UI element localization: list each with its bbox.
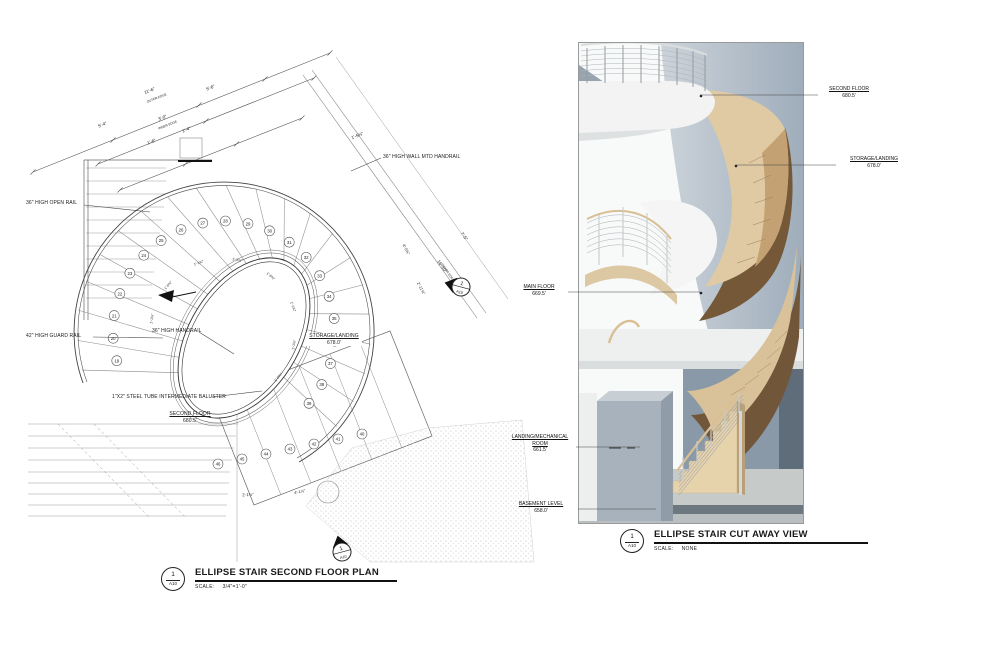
tread-number-circle [198, 218, 208, 228]
tread-line [294, 362, 354, 401]
callout-wall-handrail: 36" HIGH WALL MTD HANDRAIL [383, 154, 503, 161]
tread-number-circle [109, 311, 119, 321]
dim-text: 4'-0⅝" [401, 243, 411, 256]
callout-guard-rail: 42" HIGH GUARD RAIL [26, 333, 96, 340]
tread-number: 42 [312, 442, 317, 447]
level-label: LANDING/MECHANICAL [506, 434, 574, 441]
tread-number-circle [309, 439, 319, 449]
dim-text: 16'-10" [436, 259, 448, 274]
tread-number-circle [237, 454, 247, 464]
tread-number-circle [108, 333, 118, 343]
tread-number-circle [115, 289, 125, 299]
anno-second-floor: SECOND FLOOR 680.5' [820, 86, 878, 99]
dim-text: 5'-6" [205, 83, 216, 91]
cutaway-render-svg [579, 43, 803, 523]
tread-number-circle [139, 250, 149, 260]
tread-number-circle [329, 313, 339, 323]
tread-number: 28 [223, 219, 228, 224]
plan-construction-lines [28, 168, 238, 562]
scale-value: NONE [682, 546, 698, 552]
tread-number: 45 [240, 457, 245, 462]
dim-text: OUTER EDGE [440, 263, 455, 283]
tread-number-circle [220, 216, 230, 226]
tread-number: 29 [246, 221, 251, 226]
tread-number-circle [261, 449, 271, 459]
tread-number: 31 [287, 240, 292, 245]
tread-line [301, 346, 365, 374]
tread-line [310, 285, 364, 299]
tread-number: 43 [288, 447, 293, 452]
title-rule [195, 580, 397, 582]
marker-detail: 1 [339, 546, 344, 553]
tread-dim: 1'-0⅝" [163, 280, 173, 291]
level-label: STORAGE/LANDING [306, 333, 362, 340]
callout-open-rail: 36" HIGH OPEN RAIL [26, 200, 96, 207]
tread-number-circle [324, 291, 334, 301]
tread-line [86, 281, 189, 325]
tread-line [294, 213, 311, 266]
level-elev: 678.0' [838, 163, 910, 170]
plan-treads: 1920212223242526272829303132333435363738… [77, 185, 370, 469]
tread-dim: 1'-1⅝" [193, 259, 205, 266]
level-label: SECOND FLOOR [168, 411, 212, 418]
dim-text: 1'-6" [146, 137, 157, 145]
marker-sheet: A10 [340, 555, 348, 561]
dim-text: 7'-5" [460, 231, 469, 242]
dim-text: 3'-0" [157, 113, 168, 121]
tread-number: 37 [328, 361, 333, 366]
view-sheet-number: A10 [169, 581, 177, 587]
up-direction-arrow [158, 290, 196, 302]
plan-dim-texts: 5'-4" 11'-6" OUTER EDGE 5'-6" 3'-0" INNE… [97, 83, 469, 497]
tread-number-circle [301, 252, 311, 262]
tread-line [118, 230, 208, 294]
level-elev: 661.5' [506, 447, 574, 454]
tread-number: 26 [179, 227, 184, 232]
scale-label: SCALE: [195, 584, 215, 590]
dim-text: 11'-6" [143, 86, 156, 95]
plan-dim-lines [31, 51, 333, 193]
anno-storage-landing: STORAGE/LANDING 678.0' [838, 156, 910, 169]
tread-line [302, 233, 333, 274]
tread-line [256, 188, 273, 257]
level-elev: 678.0' [306, 340, 362, 347]
dim-text: 1'-4" [181, 125, 192, 133]
tread-number: 34 [327, 294, 332, 299]
tread-line [77, 340, 179, 357]
tread-number: 46 [216, 462, 221, 467]
scale-label: SCALE: [654, 546, 674, 552]
dim-text: OUTER EDGE [146, 92, 167, 103]
anno-basement-level: BASEMENT LEVEL 658.0' [508, 501, 574, 514]
plan-level-second-floor: SECOND FLOOR 680.5' [168, 411, 212, 424]
tread-number-circle [125, 268, 135, 278]
cutaway-render [578, 42, 804, 524]
scale-value: 3/4"=1'-0" [223, 584, 248, 590]
dim-text: 2'-11⅝" [416, 281, 427, 296]
title-rule [654, 542, 868, 544]
dim-text: INNER EDGE [158, 120, 178, 131]
tread-number-circle [112, 356, 122, 366]
plan-hatch-region [306, 420, 534, 562]
plan-view-marker: 1 A10 [161, 567, 185, 591]
tread-number: 35 [332, 316, 337, 321]
tread-number: 25 [159, 238, 164, 243]
plan-lower-flight-treads [239, 343, 402, 495]
view-detail-number: 1 [166, 572, 180, 581]
tread-number: 19 [114, 358, 119, 363]
level-elev: 658.0' [508, 508, 574, 515]
tread-number-circle [285, 444, 295, 454]
tread-dim: 1'-0⅝" [273, 372, 283, 383]
level-elev: 680.5' [820, 93, 878, 100]
tread-line [141, 211, 220, 282]
tread-line [82, 370, 178, 373]
tread-dim: 1'-0⅝" [265, 271, 276, 281]
section-marker-right: 1 A10 [442, 274, 472, 298]
tread-number: 32 [304, 255, 309, 260]
callout-baluster: 1"X2" STEEL TUBE INTERMEDIATE BALUSTER [112, 394, 242, 401]
tread-number: 20 [111, 336, 116, 341]
tread-number: 24 [141, 253, 146, 258]
dim-text: 1'-5¾" [351, 131, 365, 140]
callout-handrail: 36" HIGH HANDRAIL [152, 328, 212, 335]
tread-number: 33 [317, 273, 322, 278]
cutaway-view-title: ELLIPSE STAIR CUT AWAY VIEW [654, 529, 868, 540]
tread-number: 30 [267, 228, 272, 233]
marker-detail: 1 [460, 281, 465, 288]
tread-number: 41 [336, 437, 341, 442]
tread-number: 44 [264, 452, 269, 457]
tread-number-circle [213, 459, 223, 469]
tread-line [196, 188, 246, 264]
tread-number: 22 [117, 291, 122, 296]
tread-line [307, 257, 351, 285]
level-elev: 680.5' [168, 418, 212, 425]
section-marker-bottom: 1 A10 [329, 533, 353, 563]
tread-line [99, 254, 197, 309]
tread-dim: 1'-1⅝" [289, 301, 296, 313]
tread-number-circle [333, 434, 343, 444]
plan-outer-boundary [74, 182, 374, 462]
tread-number-circle [156, 236, 166, 246]
cutaway-title-block: 1 A10 ELLIPSE STAIR CUT AWAY VIEW SCALE:… [620, 529, 868, 553]
plan-title-block: 1 A10 ELLIPSE STAIR SECOND FLOOR PLAN SC… [161, 567, 397, 591]
tread-number: 39 [307, 401, 312, 406]
dim-text: 5'-4" [97, 120, 108, 128]
plan-drawing: 1920212223242526272829303132333435363738… [0, 0, 1000, 666]
tread-line [284, 377, 337, 426]
tread-number: 27 [200, 221, 205, 226]
view-sheet-number: A10 [628, 543, 636, 549]
render-mid-left-railing [585, 200, 717, 305]
drawing-sheet: 1920212223242526272829303132333435363738… [0, 0, 1000, 666]
plan-scale: SCALE: 3/4"=1'-0" [195, 584, 397, 590]
dim-text: 4'-1⅞" [294, 488, 307, 495]
cutaway-view-marker: 1 A10 [620, 529, 644, 553]
tread-number: 40 [360, 432, 365, 437]
tread-dim: 1'-1⅜" [232, 257, 243, 263]
tread-line [226, 185, 260, 259]
tread-dim: 1'-1⅜" [291, 339, 297, 350]
anno-main-floor: MAIN FLOOR 669.5' [512, 284, 566, 297]
tread-number-circle [325, 359, 335, 369]
tread-line [167, 196, 233, 271]
tread-number: 23 [127, 271, 132, 276]
cutaway-scale: SCALE: NONE [654, 546, 868, 552]
tread-number-circle [304, 398, 314, 408]
plan-level-storage-landing: STORAGE/LANDING 678.0' [306, 333, 362, 346]
tread-number-circle [317, 380, 327, 390]
tread-number-circle [176, 225, 186, 235]
marker-sheet: A10 [456, 290, 464, 296]
plan-view-title: ELLIPSE STAIR SECOND FLOOR PLAN [195, 567, 397, 578]
tread-number-circle [357, 429, 367, 439]
tread-number: 38 [319, 382, 324, 387]
tread-number-circle [243, 219, 253, 229]
plan-boundary-lines [84, 57, 508, 505]
tread-number-circle [315, 271, 325, 281]
tread-dim: 1'-1⅜" [149, 313, 155, 324]
tread-number-circle [284, 237, 294, 247]
view-detail-number: 1 [625, 534, 639, 543]
tread-number-circle [265, 226, 275, 236]
tread-number: 21 [112, 313, 117, 318]
level-elev: 669.5' [512, 291, 566, 298]
anno-landing-mech-room: LANDING/MECHANICAL ROOM 661.5' [506, 434, 574, 454]
dim-text: 2'-1¼" [242, 492, 254, 498]
